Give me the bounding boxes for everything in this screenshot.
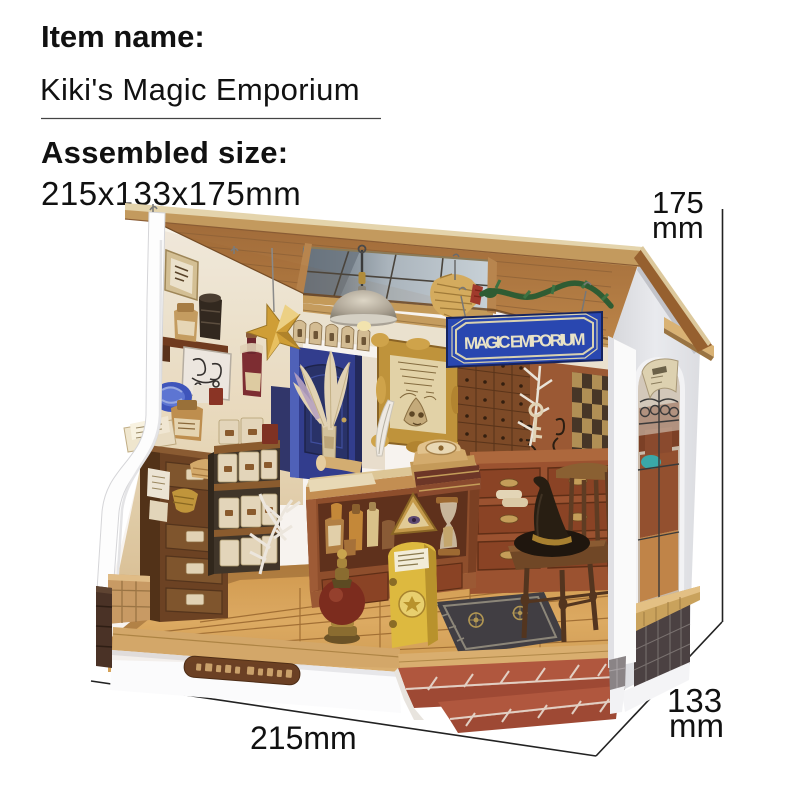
svg-text:Kiki's Magic Emporium: Kiki's Magic Emporium [40,72,360,107]
svg-text:mm: mm [652,210,704,245]
svg-text:mm: mm [669,707,724,744]
svg-text:Assembled size:: Assembled size: [41,135,288,170]
svg-text:215x133x175mm: 215x133x175mm [41,175,301,212]
svg-text:Item name:: Item name: [41,19,205,54]
svg-text:215mm: 215mm [250,720,357,756]
